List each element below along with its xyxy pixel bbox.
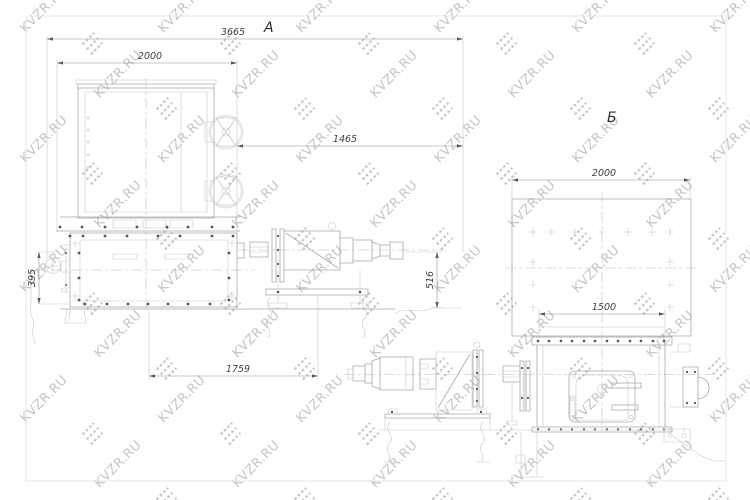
view-a-label: А xyxy=(263,20,274,36)
dim-3665: 3665 xyxy=(221,27,245,38)
view-b-left-actuator xyxy=(503,361,530,425)
view-a: 3665 2000 1465 516 395 1759 А xyxy=(27,20,463,380)
dim-395: 395 xyxy=(27,269,38,287)
dim-516: 516 xyxy=(425,271,436,289)
page-frame xyxy=(26,16,726,481)
drawing-page: KVZR.RUKVZR.RUKVZR.RUKVZR.RUKVZR.RUKVZR.… xyxy=(0,0,750,500)
view-a-flange xyxy=(56,217,240,231)
view-a-drive xyxy=(237,223,403,309)
technical-drawing-svg: 3665 2000 1465 516 395 1759 А xyxy=(0,0,750,500)
view-b-label: Б xyxy=(607,110,617,126)
dim-1500: 1500 xyxy=(592,302,616,313)
dim-1465: 1465 xyxy=(333,134,357,145)
dim-2000-b: 2000 xyxy=(592,168,616,179)
view-b-centerlines xyxy=(344,192,712,430)
view-b-base xyxy=(378,409,726,477)
hole-cross-marks xyxy=(529,228,674,311)
view-b-access-door xyxy=(569,371,641,422)
view-b: 2000 1500 Б xyxy=(344,110,726,477)
dim-2000-a: 2000 xyxy=(138,51,162,62)
view-a-left-foot xyxy=(30,268,86,344)
view-a-base xyxy=(60,297,462,338)
view-a-centerlines xyxy=(31,78,446,312)
view-b-drive xyxy=(348,342,483,410)
view-b-dimensions: 2000 1500 xyxy=(512,168,690,336)
dim-1759: 1759 xyxy=(226,364,250,375)
